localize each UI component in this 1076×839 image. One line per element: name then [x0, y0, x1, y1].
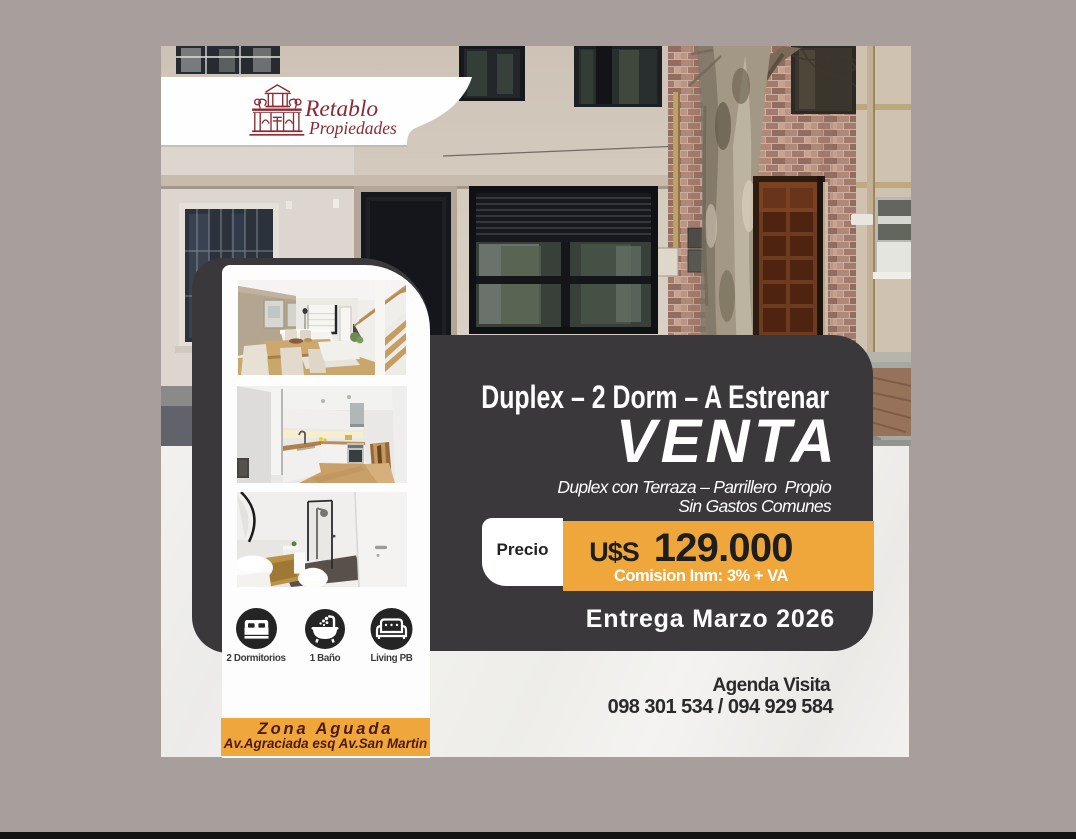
svg-text:Propiedades: Propiedades: [308, 118, 397, 138]
